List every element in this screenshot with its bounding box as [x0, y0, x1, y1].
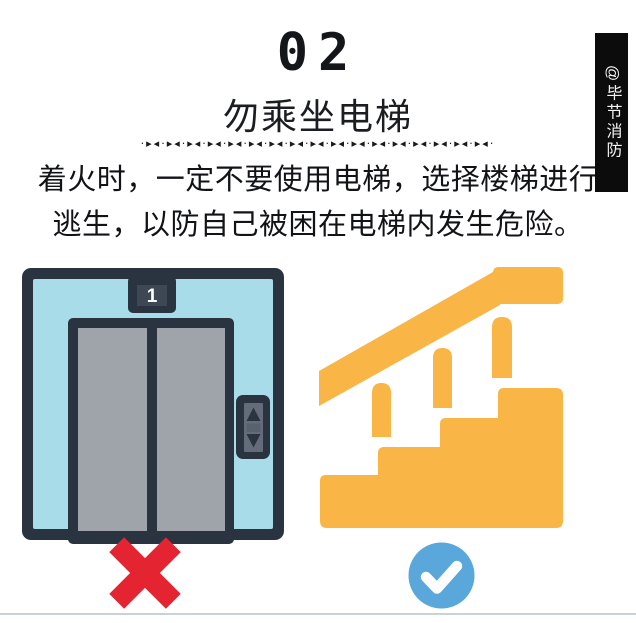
steps — [320, 388, 563, 528]
description-line-2: 逃生，以防自己被困在电梯内发生危险。 — [0, 203, 636, 248]
check-icon — [405, 539, 478, 612]
baluster — [492, 317, 512, 378]
call-button-panel — [236, 395, 270, 459]
section-number: 02 — [0, 26, 636, 81]
description-line-1: 着火时，一定不要使用电梯，选择楼梯进行 — [0, 158, 636, 203]
baluster — [372, 383, 391, 437]
description-text: 着火时，一定不要使用电梯，选择楼梯进行 逃生，以防自己被困在电梯内发生危险。 — [0, 158, 636, 248]
watermark-text: @毕节消防 — [600, 65, 624, 160]
fire-safety-poster: 02 勿乘坐电梯 ·▸◂·▸◂·▸◂·▸◂·▸◂·▸◂·▸◂·▸◂·▸◂·▸◂·… — [0, 0, 636, 623]
watermark-bar: @毕节消防 — [595, 33, 628, 192]
poster-title: 勿乘坐电梯 — [0, 88, 636, 140]
bottom-divider — [0, 613, 636, 615]
door-left — [78, 328, 147, 531]
stairs-illustration — [312, 260, 570, 535]
elevator-doors — [68, 318, 234, 544]
floor-number: 1 — [147, 286, 158, 307]
cross-icon — [105, 533, 185, 613]
elevator-illustration: 1 — [16, 262, 296, 544]
baluster — [433, 348, 452, 408]
divider-ornament: ·▸◂·▸◂·▸◂·▸◂·▸◂·▸◂·▸◂·▸◂·▸◂·▸◂·▸◂·▸◂·▸◂·… — [0, 138, 636, 149]
door-right — [157, 328, 225, 531]
floor-display: 1 — [128, 276, 176, 313]
